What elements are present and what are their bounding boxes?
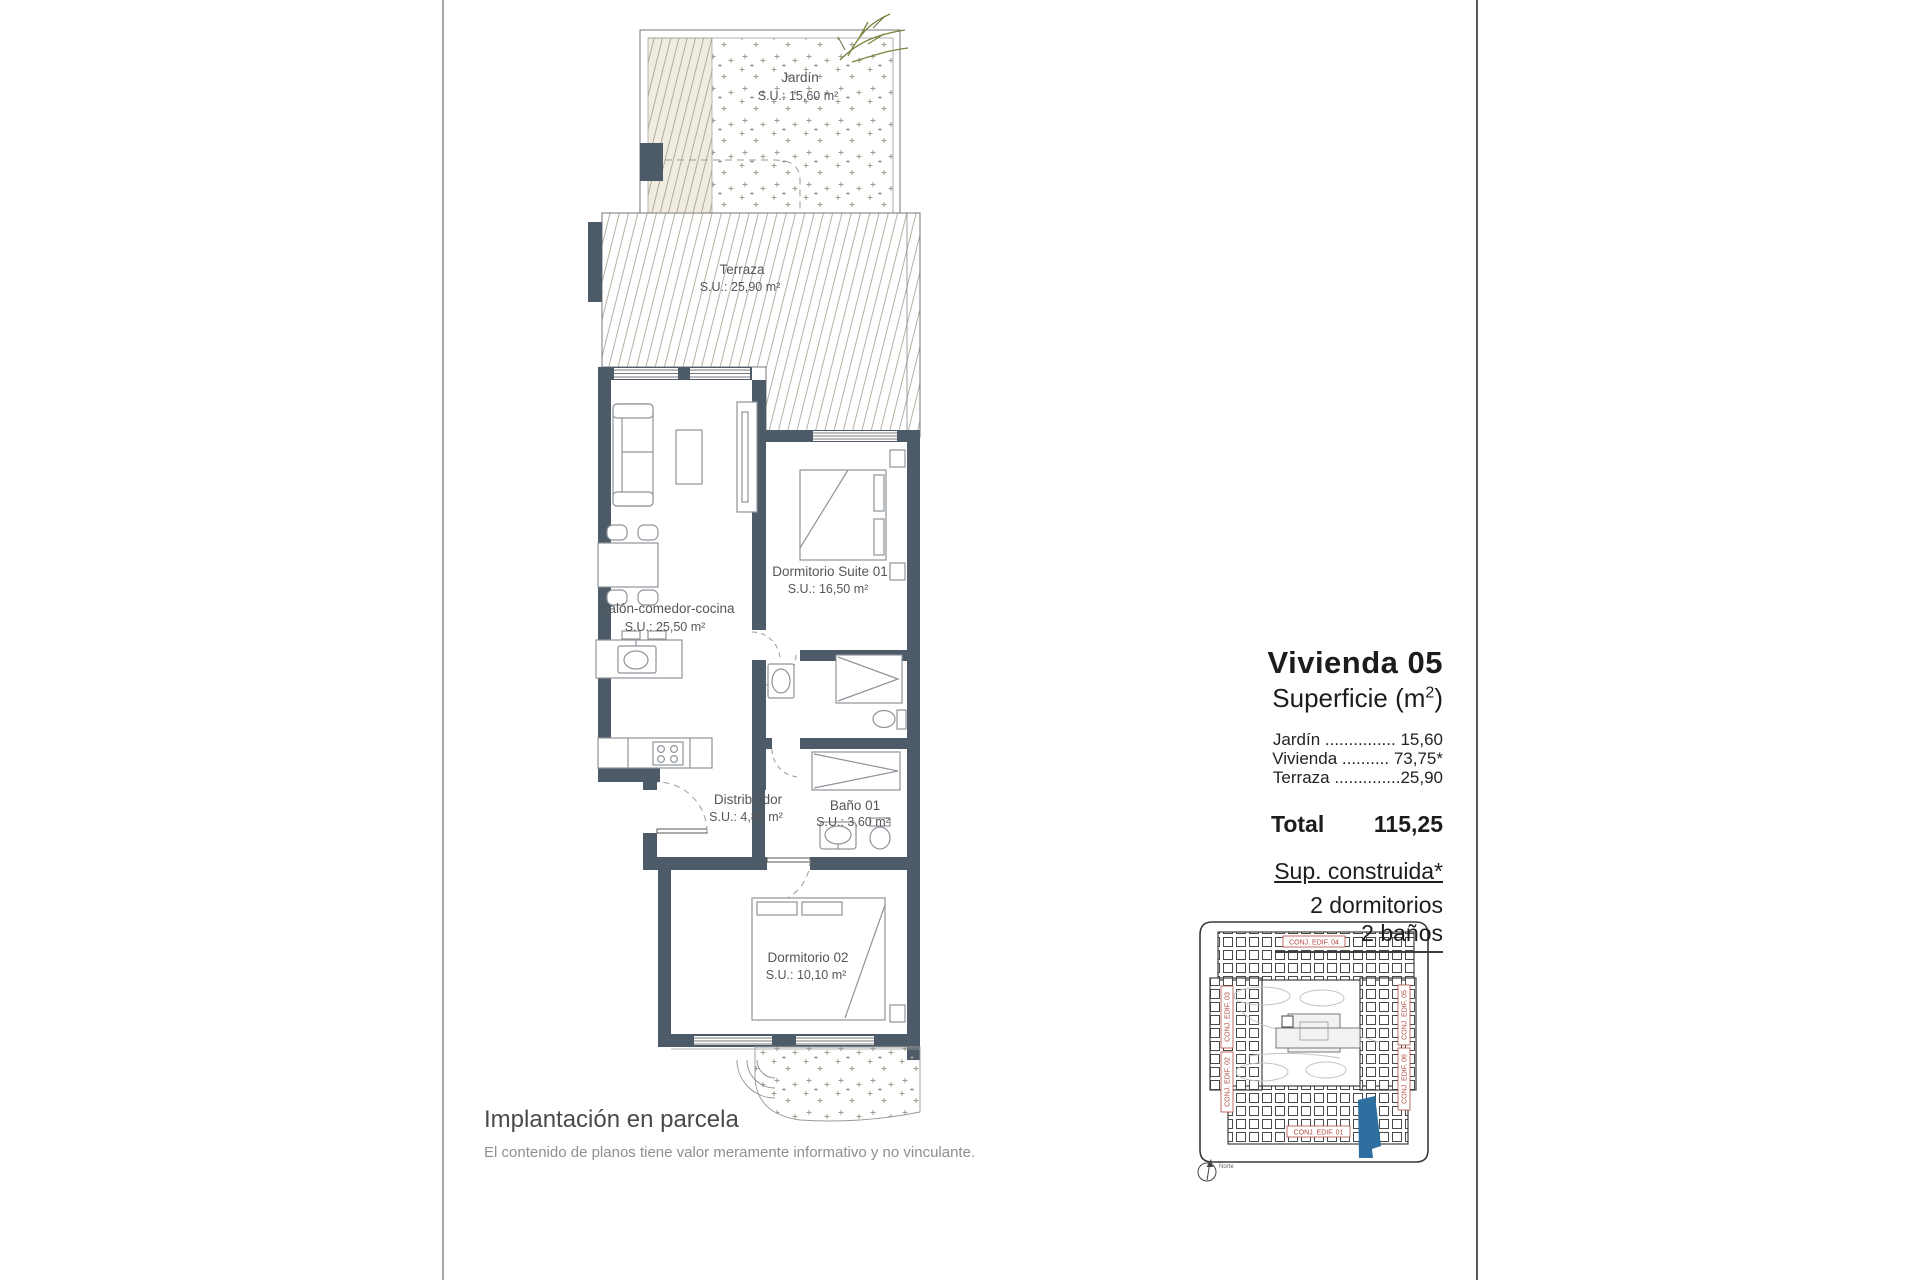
living-room-furniture bbox=[596, 402, 757, 768]
nightstand bbox=[890, 563, 905, 580]
tv-unit bbox=[737, 402, 757, 512]
label-salon: Salón-comedor-cocina bbox=[599, 601, 735, 616]
label-salon-area: S.U.: 25,50 m² bbox=[625, 620, 706, 634]
coffee-table bbox=[676, 430, 702, 484]
window-icon bbox=[796, 1036, 874, 1045]
floor-plan: Jardín S.U.: 15,60 m² Terraza S.U.: 25,9… bbox=[588, 14, 920, 1121]
total-row: Total 115,25 bbox=[1271, 811, 1443, 838]
surface-subtitle-sup: 2 bbox=[1425, 684, 1434, 701]
label-suite: Dormitorio Suite 01 bbox=[772, 564, 888, 579]
ensuite-bathroom bbox=[768, 655, 906, 729]
nightstand bbox=[890, 1005, 905, 1022]
unit-title: Vivienda 05 bbox=[1143, 645, 1443, 681]
kitchen-counter bbox=[598, 738, 712, 768]
site-label-right-lower: CONJ. EDIF. 06 bbox=[1402, 1054, 1409, 1104]
window-icon bbox=[614, 368, 678, 379]
shower bbox=[836, 655, 902, 703]
window-icon bbox=[694, 1036, 772, 1045]
toilet bbox=[873, 710, 906, 729]
constructed-surface-label: Sup. construida* bbox=[1143, 858, 1443, 885]
bed-suite bbox=[800, 470, 886, 560]
label-terraza: Terraza bbox=[719, 262, 765, 277]
label-bano-area: S.U.: 3,60 m² bbox=[816, 815, 890, 829]
label-bano: Baño 01 bbox=[830, 798, 880, 813]
site-label-left-lower: CONJ. EDIF. 02 bbox=[1225, 1057, 1232, 1107]
sofa bbox=[613, 404, 653, 506]
sink bbox=[768, 664, 794, 698]
caption-block: Implantación en parcela El contenido de … bbox=[484, 1106, 975, 1161]
caption-disclaimer: El contenido de planos tiene valor meram… bbox=[484, 1144, 975, 1161]
site-label-left-upper: CONJ. EDIF. 03 bbox=[1225, 992, 1232, 1042]
caption-title: Implantación en parcela bbox=[484, 1106, 975, 1134]
site-plan: CONJ. EDIF. 04 CONJ. EDIF. 01 CONJ. EDIF… bbox=[1198, 922, 1428, 1181]
info-panel: Vivienda 05 Superficie (m2) Jardín .....… bbox=[1143, 645, 1443, 953]
shower bbox=[812, 752, 900, 790]
total-value: 115,25 bbox=[1374, 811, 1443, 838]
bedroom2-door-leaf bbox=[767, 858, 810, 862]
window-icon bbox=[690, 368, 750, 379]
surface-row-jardin: Jardín ............... 15,60 bbox=[1143, 730, 1443, 749]
surface-row-terraza: Terraza ..............25,90 bbox=[1143, 768, 1443, 787]
bedrooms-count: 2 dormitorios bbox=[1143, 891, 1443, 919]
label-distribuidor-area: S.U.: 4,80 m² bbox=[709, 810, 783, 824]
surface-subtitle-prefix: Superficie (m bbox=[1272, 683, 1425, 713]
plan-sheet: Jardín S.U.: 15,60 m² Terraza S.U.: 25,9… bbox=[0, 0, 1920, 1280]
suite-furniture bbox=[800, 450, 905, 580]
surface-subtitle-suffix: ) bbox=[1434, 683, 1443, 713]
label-suite-area: S.U.: 16,50 m² bbox=[788, 582, 869, 596]
surface-rows: Jardín ............... 15,60 Vivienda ..… bbox=[1143, 730, 1443, 787]
site-label-bottom: CONJ. EDIF. 01 bbox=[1294, 1130, 1344, 1137]
label-distribuidor: Distribuidor bbox=[714, 792, 783, 807]
nightstand bbox=[890, 450, 905, 467]
label-dorm2: Dormitorio 02 bbox=[767, 950, 848, 965]
site-label-right-upper: CONJ. EDIF. 05 bbox=[1402, 990, 1409, 1040]
window-icon bbox=[813, 431, 897, 441]
entry-door-leaf bbox=[657, 829, 707, 833]
surface-row-vivienda: Vivienda .......... 73,75* bbox=[1143, 749, 1443, 768]
label-jardin-area: S.U.: 15,60 m² bbox=[758, 89, 839, 103]
label-terraza-area: S.U.: 25,90 m² bbox=[700, 280, 781, 294]
north-label: Norte bbox=[1219, 1164, 1234, 1170]
total-label: Total bbox=[1271, 811, 1324, 838]
label-dorm2-area: S.U.: 10,10 m² bbox=[766, 968, 847, 982]
bathrooms-count: 2 baños bbox=[1143, 919, 1443, 947]
surface-subtitle: Superficie (m2) bbox=[1143, 683, 1443, 714]
garden-area bbox=[640, 30, 900, 213]
floor-plan-canvas: Jardín S.U.: 15,60 m² Terraza S.U.: 25,9… bbox=[0, 0, 1920, 1280]
divider bbox=[1275, 951, 1443, 953]
label-jardin: Jardín bbox=[781, 70, 819, 85]
